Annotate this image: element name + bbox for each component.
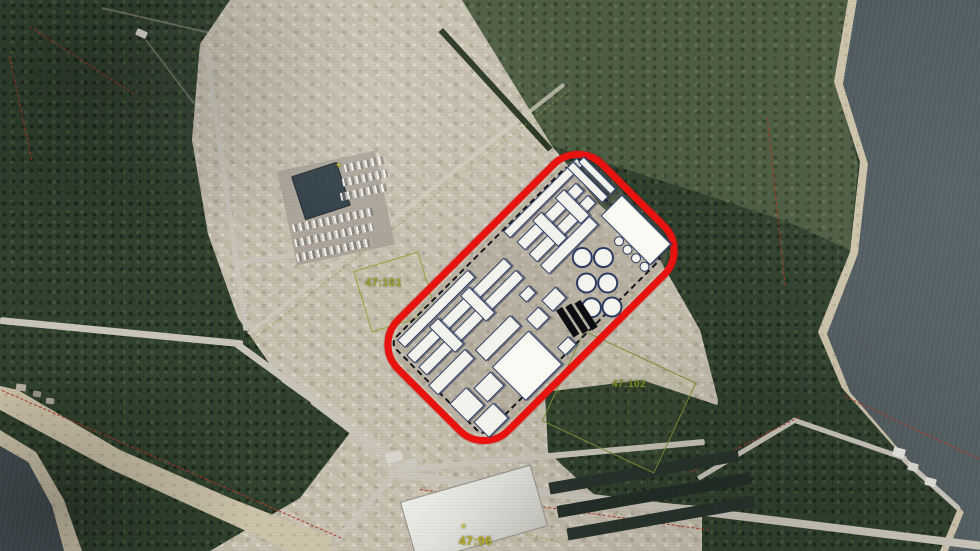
parcel-label-47-96: 47:96 — [459, 534, 492, 548]
survey-mark: + — [336, 160, 342, 170]
labels-layer: 47:101 47:102 47:96 + + — [0, 0, 980, 551]
survey-mark: + — [461, 521, 467, 531]
parcel-label-47-101: 47:101 — [365, 277, 402, 289]
aerial-map[interactable]: 47:101 47:102 47:96 + + — [0, 0, 980, 551]
parcel-label-47-102: 47:102 — [612, 379, 646, 390]
